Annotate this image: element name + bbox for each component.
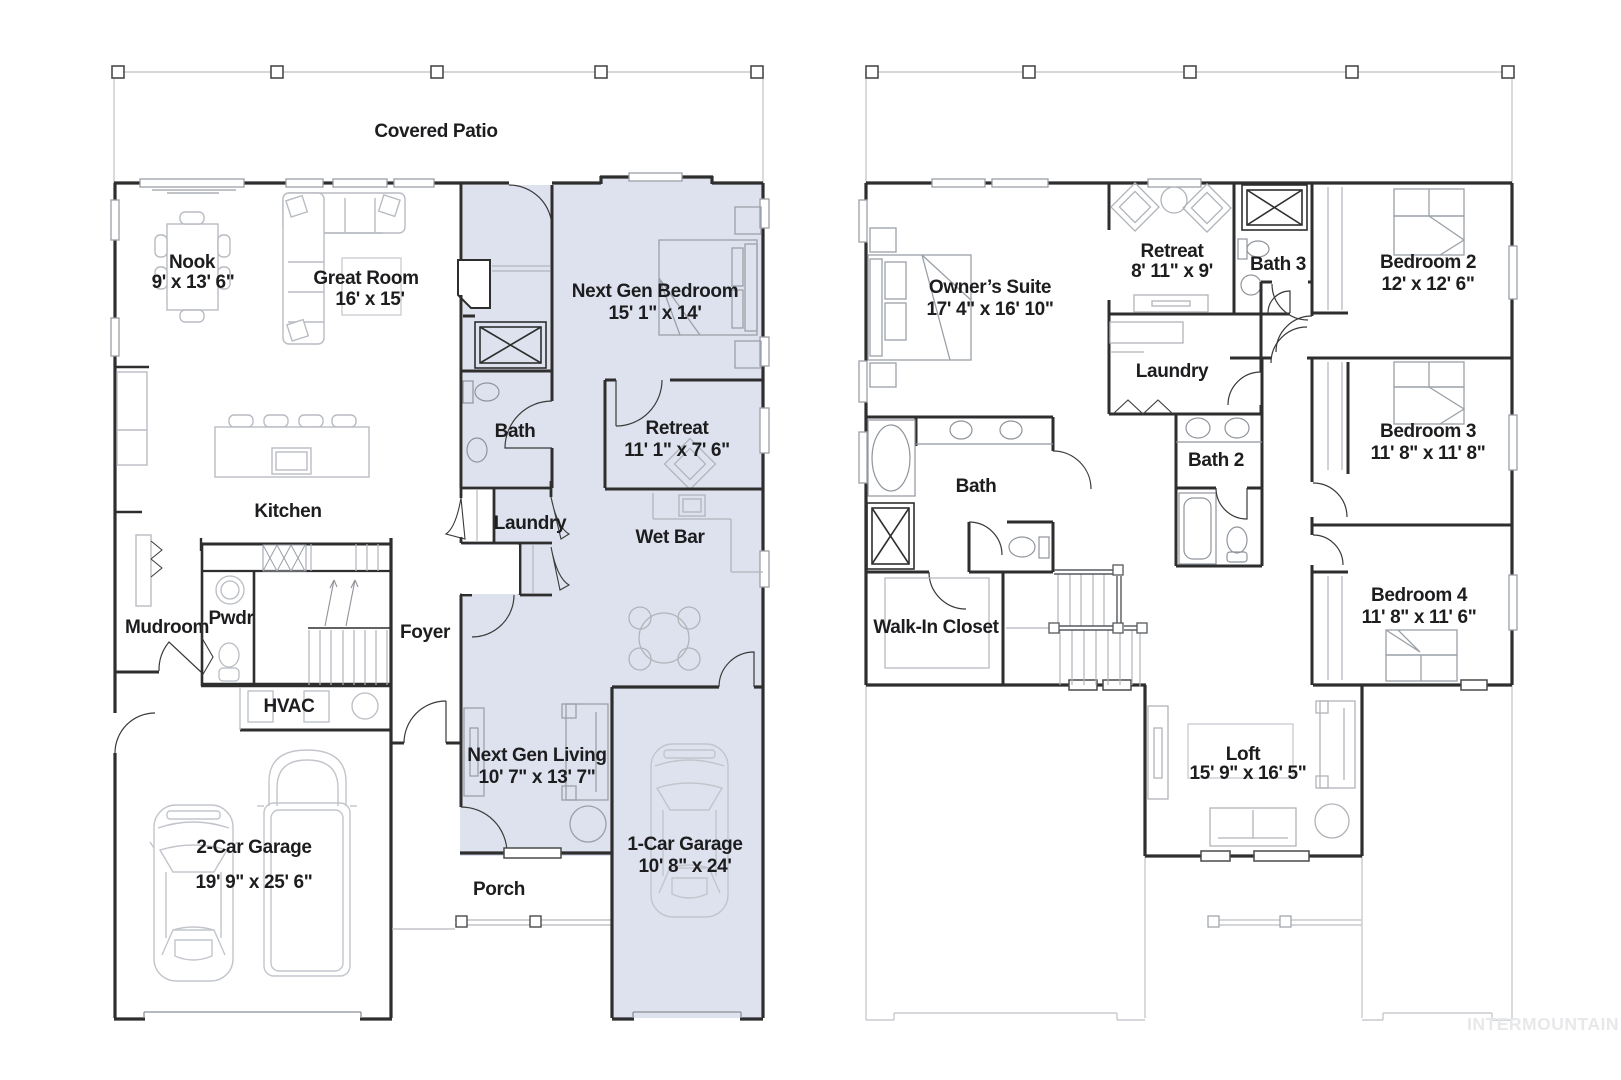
svg-text:Retreat: Retreat <box>1140 241 1204 262</box>
svg-text:Mudroom: Mudroom <box>125 617 209 638</box>
svg-text:Walk-In Closet: Walk-In Closet <box>873 617 999 638</box>
svg-text:1-Car Garage: 1-Car Garage <box>627 834 742 855</box>
svg-text:11' 8" x 11' 8": 11' 8" x 11' 8" <box>1371 443 1486 464</box>
svg-text:Laundry: Laundry <box>494 513 567 534</box>
svg-text:Laundry: Laundry <box>1136 361 1209 382</box>
svg-text:Bath 2: Bath 2 <box>1188 450 1244 471</box>
svg-text:Retreat: Retreat <box>645 418 709 439</box>
svg-text:Bath 3: Bath 3 <box>1250 254 1306 275</box>
svg-text:Next Gen Bedroom: Next Gen Bedroom <box>572 281 739 302</box>
svg-text:Porch: Porch <box>473 879 525 900</box>
svg-text:19' 9" x 25' 6": 19' 9" x 25' 6" <box>196 872 313 893</box>
svg-text:Bath: Bath <box>495 421 536 442</box>
svg-text:Bedroom 4: Bedroom 4 <box>1371 585 1468 606</box>
svg-text:17' 4" x 16' 10": 17' 4" x 16' 10" <box>926 299 1053 320</box>
svg-text:16' x 15': 16' x 15' <box>335 289 404 310</box>
svg-text:HVAC: HVAC <box>263 696 315 717</box>
svg-text:15' 9" x 16' 5": 15' 9" x 16' 5" <box>1190 763 1307 784</box>
svg-text:Foyer: Foyer <box>400 622 451 643</box>
svg-text:11' 1" x 7' 6": 11' 1" x 7' 6" <box>624 440 730 461</box>
svg-text:10' 7" x 13' 7": 10' 7" x 13' 7" <box>479 767 596 788</box>
svg-text:Next Gen Living: Next Gen Living <box>467 745 606 766</box>
svg-text:15' 1" x 14': 15' 1" x 14' <box>608 303 701 324</box>
svg-text:8' 11" x 9': 8' 11" x 9' <box>1131 261 1213 282</box>
svg-text:11' 8" x 11' 6": 11' 8" x 11' 6" <box>1362 607 1477 628</box>
svg-text:12' x 12' 6": 12' x 12' 6" <box>1381 274 1474 295</box>
svg-text:Kitchen: Kitchen <box>254 501 321 522</box>
svg-text:Great Room: Great Room <box>313 268 418 289</box>
svg-text:10' 8" x 24': 10' 8" x 24' <box>638 856 731 877</box>
svg-text:Bedroom 3: Bedroom 3 <box>1380 421 1476 442</box>
svg-text:9' x 13' 6": 9' x 13' 6" <box>152 272 235 293</box>
svg-text:Bath: Bath <box>956 476 997 497</box>
svg-text:Wet Bar: Wet Bar <box>636 527 706 548</box>
svg-text:Covered Patio: Covered Patio <box>374 121 497 142</box>
svg-text:Pwdr: Pwdr <box>208 608 254 629</box>
svg-text:Nook: Nook <box>169 252 216 273</box>
svg-text:Bedroom 2: Bedroom 2 <box>1380 252 1476 273</box>
svg-text:INTERMOUNTAIN: INTERMOUNTAIN <box>1467 1014 1619 1034</box>
svg-text:2-Car Garage: 2-Car Garage <box>196 837 311 858</box>
svg-text:Owner’s Suite: Owner’s Suite <box>929 277 1051 298</box>
svg-text:Loft: Loft <box>1226 744 1261 765</box>
